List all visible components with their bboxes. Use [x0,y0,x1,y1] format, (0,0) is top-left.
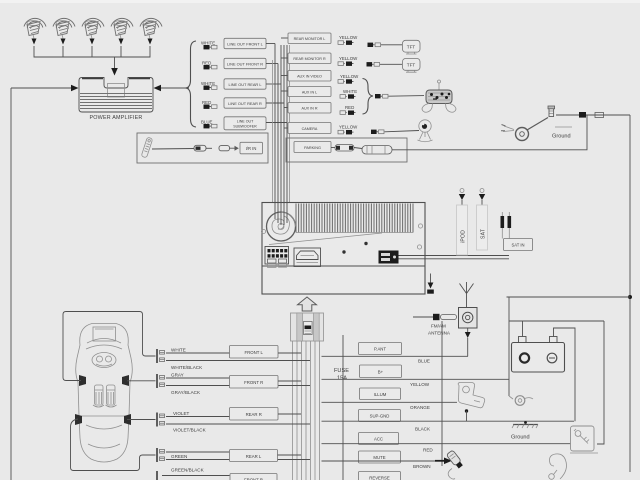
svg-text:P.ANT: P.ANT [374,347,386,352]
svg-text:REVERSE: REVERSE [369,476,390,480]
svg-text:ORANGE: ORANGE [410,405,430,410]
svg-text:POWER AMPLIFIER: POWER AMPLIFIER [89,115,142,121]
svg-text:SAT: SAT [481,229,487,239]
svg-text:Ground: Ground [511,435,530,441]
svg-text:YELLOW: YELLOW [340,74,359,79]
svg-text:BLUE: BLUE [418,359,430,364]
svg-text:GREEN: GREEN [171,454,187,459]
svg-text:ANTENNA: ANTENNA [428,331,451,336]
svg-text:SUP-GND: SUP-GND [370,414,390,419]
svg-text:GRAY: GRAY [171,373,184,378]
svg-text:FRONT L: FRONT L [245,350,264,355]
svg-text:WHITE: WHITE [201,40,215,45]
svg-text:LINE OUT FRONT R: LINE OUT FRONT R [227,62,263,67]
svg-text:SUBWOOFER: SUBWOOFER [233,124,257,128]
svg-text:WHITE: WHITE [201,81,215,86]
svg-text:AUX IN VIDEO: AUX IN VIDEO [297,75,322,79]
svg-text:VIOLET: VIOLET [173,411,190,416]
svg-text:AUX IN R: AUX IN R [302,107,318,111]
svg-text:FM/AM: FM/AM [431,324,446,329]
svg-text:REAR MONITOR L: REAR MONITOR L [294,37,326,41]
svg-text:GRAY/BLACK: GRAY/BLACK [171,390,201,395]
svg-text:BLACK: BLACK [415,426,431,431]
svg-text:RED: RED [202,60,211,65]
svg-text:RED: RED [202,100,211,105]
svg-text:Ground: Ground [552,134,571,140]
svg-text:REAR L: REAR L [246,454,262,459]
svg-text:ILLUM: ILLUM [374,392,387,397]
svg-text:15A: 15A [337,376,347,382]
svg-text:RED: RED [423,447,433,452]
svg-text:B+: B+ [378,369,384,374]
svg-text:VIOLET/BLACK: VIOLET/BLACK [173,427,207,432]
svg-text:WHITE: WHITE [343,89,357,94]
svg-text:iPOD: iPOD [461,230,467,243]
svg-text:CAMERA: CAMERA [302,127,318,131]
svg-text:TFT: TFT [407,44,416,49]
svg-text:YELLOW: YELLOW [339,56,358,61]
svg-text:I/R IN: I/R IN [246,146,257,151]
svg-text:YELLOW: YELLOW [339,125,358,130]
svg-text:BLUE: BLUE [201,119,213,124]
svg-text:LINE OUT REAR R: LINE OUT REAR R [228,101,262,106]
svg-text:TFT: TFT [407,63,416,68]
svg-text:BROWN: BROWN [413,464,431,469]
svg-text:ACC: ACC [374,437,383,442]
svg-text:GREEN/BLACK: GREEN/BLACK [171,467,205,472]
svg-text:WHITE/BLACK: WHITE/BLACK [171,365,203,370]
svg-text:REAR R: REAR R [246,412,262,417]
svg-text:FUSE: FUSE [334,368,349,374]
svg-text:SAT IN: SAT IN [511,243,524,248]
svg-text:LINE OUT: LINE OUT [237,119,254,123]
svg-text:WHITE: WHITE [171,348,186,353]
svg-text:LINE OUT REAR L: LINE OUT REAR L [228,82,262,87]
svg-text:LINE OUT FRONT L: LINE OUT FRONT L [227,42,263,47]
svg-text:MUTE: MUTE [373,455,385,460]
svg-text:REAR MONITOR R: REAR MONITOR R [293,57,326,61]
svg-text:RED: RED [345,105,354,110]
svg-text:PARKING: PARKING [304,146,321,150]
svg-text:AUX IN L: AUX IN L [302,91,317,95]
svg-text:YELLOW: YELLOW [339,35,358,40]
svg-text:FRONT R: FRONT R [244,380,263,385]
svg-text:YELLOW: YELLOW [410,382,430,387]
